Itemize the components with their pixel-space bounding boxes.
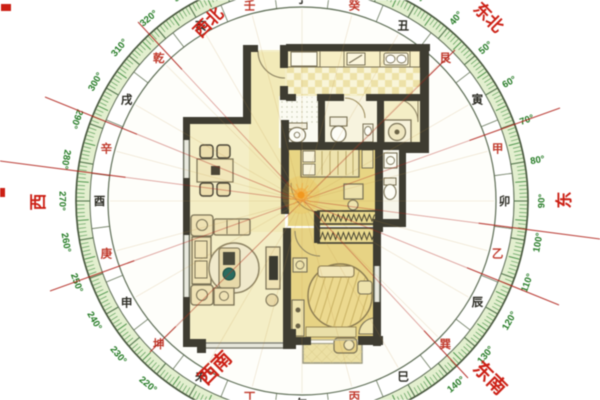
svg-text:丙: 丙 xyxy=(349,391,361,400)
svg-text:壬: 壬 xyxy=(244,0,256,12)
svg-text:东: 东 xyxy=(554,192,574,209)
svg-text:270°: 270° xyxy=(57,191,68,211)
svg-text:丑: 丑 xyxy=(397,20,409,33)
svg-text:申: 申 xyxy=(121,295,133,309)
svg-text:癸: 癸 xyxy=(348,0,361,12)
svg-text:庚: 庚 xyxy=(101,246,113,260)
svg-text:丁: 丁 xyxy=(244,391,256,400)
svg-text:寅: 寅 xyxy=(472,93,484,107)
svg-text:戌: 戌 xyxy=(121,93,133,107)
svg-text:卯: 卯 xyxy=(499,194,511,208)
svg-text:艮: 艮 xyxy=(439,51,451,65)
svg-text:甲: 甲 xyxy=(492,143,504,156)
svg-text:辛: 辛 xyxy=(101,142,113,156)
svg-text:巳: 巳 xyxy=(397,370,409,383)
svg-text:子: 子 xyxy=(296,0,308,6)
svg-text:西: 西 xyxy=(29,194,48,211)
svg-text:90°: 90° xyxy=(537,194,548,209)
svg-text:乾: 乾 xyxy=(153,51,165,65)
svg-text:辰: 辰 xyxy=(472,296,484,309)
svg-text:酉: 酉 xyxy=(94,195,106,208)
svg-text:乙: 乙 xyxy=(492,247,504,260)
